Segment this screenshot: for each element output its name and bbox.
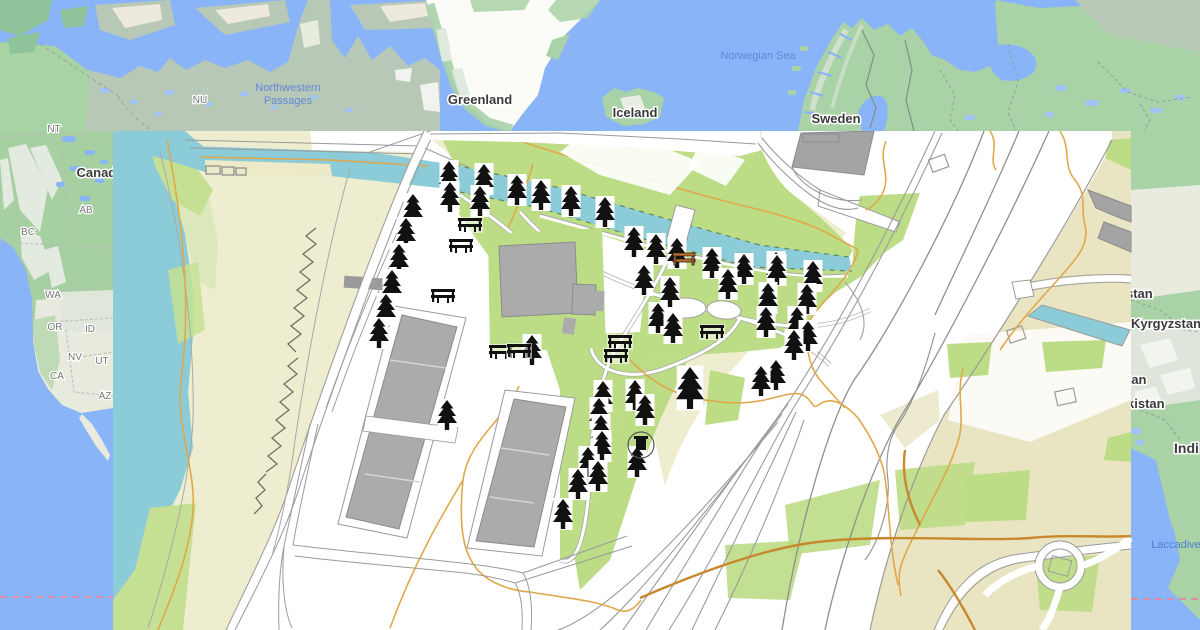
- svg-text:kistan: kistan: [1127, 396, 1165, 411]
- svg-text:ID: ID: [85, 324, 95, 335]
- svg-text:UT: UT: [95, 356, 108, 367]
- svg-text:NT: NT: [47, 124, 60, 135]
- svg-text:Indi: Indi: [1174, 440, 1199, 456]
- svg-text:AB: AB: [79, 205, 93, 216]
- svg-text:CA: CA: [50, 371, 64, 382]
- svg-text:Kyrgyzstan: Kyrgyzstan: [1131, 316, 1200, 331]
- svg-text:AZ: AZ: [99, 391, 112, 402]
- svg-text:OR: OR: [48, 322, 63, 333]
- svg-text:Northwestern: Northwestern: [255, 82, 320, 94]
- svg-text:WA: WA: [45, 290, 61, 301]
- svg-text:Laccadive: Laccadive: [1151, 539, 1200, 551]
- svg-text:Norwegian Sea: Norwegian Sea: [720, 50, 796, 62]
- svg-text:NU: NU: [193, 95, 207, 106]
- svg-text:BC: BC: [21, 227, 35, 238]
- svg-text:Passages: Passages: [264, 95, 313, 107]
- svg-text:Iceland: Iceland: [613, 105, 658, 120]
- svg-text:Sweden: Sweden: [811, 111, 860, 126]
- svg-text:Greenland: Greenland: [448, 92, 512, 107]
- svg-text:NV: NV: [68, 352, 82, 363]
